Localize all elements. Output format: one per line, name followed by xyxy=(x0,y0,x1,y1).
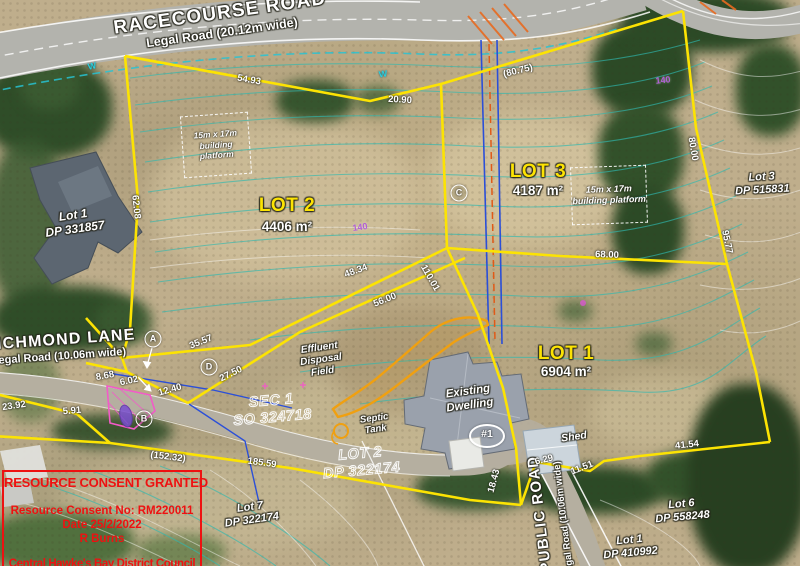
node-marker-b: B xyxy=(136,411,153,428)
parent-parcel-sec1: SEC 1SO 324718 xyxy=(231,390,312,431)
lot1-area: 6904 m² xyxy=(541,364,591,380)
stamp-date: Date 25/2/2022 xyxy=(4,519,200,531)
stamp-title: RESOURCE CONSENT GRANTED xyxy=(4,475,200,490)
node-marker-a: A xyxy=(145,331,162,348)
platform-label-line2: building platform xyxy=(199,139,234,162)
node-marker-c: C xyxy=(451,185,468,202)
platform-label-line2: building platform xyxy=(572,194,646,207)
septic-tank-mark xyxy=(334,424,348,438)
node-marker-d: D xyxy=(201,359,218,376)
lot2-label: LOT 2 xyxy=(259,195,315,217)
resource-consent-stamp: RESOURCE CONSENT GRANTED Resource Consen… xyxy=(2,470,202,566)
contour-elevation-label: 140 xyxy=(352,221,368,233)
stamp-consent-number: Resource Consent No: RM220011 xyxy=(4,505,200,517)
contour-elevation-label: 140 xyxy=(655,74,671,86)
adjoining-lot-dp558248: Lot 6DP 558248 xyxy=(654,496,711,527)
adjoining-lot-dp410992: Lot 1DP 410992 xyxy=(602,532,659,563)
dimension-label: 5.91 xyxy=(62,405,81,418)
water-main-symbol: W xyxy=(378,68,388,79)
effluent-field-label: EffluentDisposalField xyxy=(298,340,344,381)
dimension-label: 68.00 xyxy=(595,249,619,261)
lot2-area: 4406 m² xyxy=(262,219,312,235)
parent-parcel-lot2: LOT 2DP 322174 xyxy=(321,443,401,484)
stamp-council: Central Hawke's Bay District Council xyxy=(4,558,200,566)
stamp-officer: R Burns xyxy=(4,533,200,545)
building-platform-lot3: 15m x 17m building platform xyxy=(570,165,648,226)
building-platform-lot2: 15m x 17m building platform xyxy=(180,112,252,179)
dimension-label: 20.90 xyxy=(388,94,412,106)
septic-tank-label: SepticTank xyxy=(359,411,390,437)
lot3-area: 4187 m² xyxy=(513,183,563,199)
water-main-symbol: W xyxy=(87,60,97,72)
dimension-label: 62.08 xyxy=(129,195,142,220)
lot3-label: LOT 3 xyxy=(510,161,566,183)
adjoining-lot-dp515831: Lot 3DP 515831 xyxy=(734,170,790,199)
survey-aerial-map: 15m x 17m building platform 15m x 17m bu… xyxy=(0,0,800,566)
pipe-dashed-line xyxy=(489,44,495,342)
lot1-label: LOT 1 xyxy=(538,343,594,365)
platform-label-line1: 15m x 17m xyxy=(586,183,632,195)
dwelling-number-bubble: #1 xyxy=(469,424,505,448)
